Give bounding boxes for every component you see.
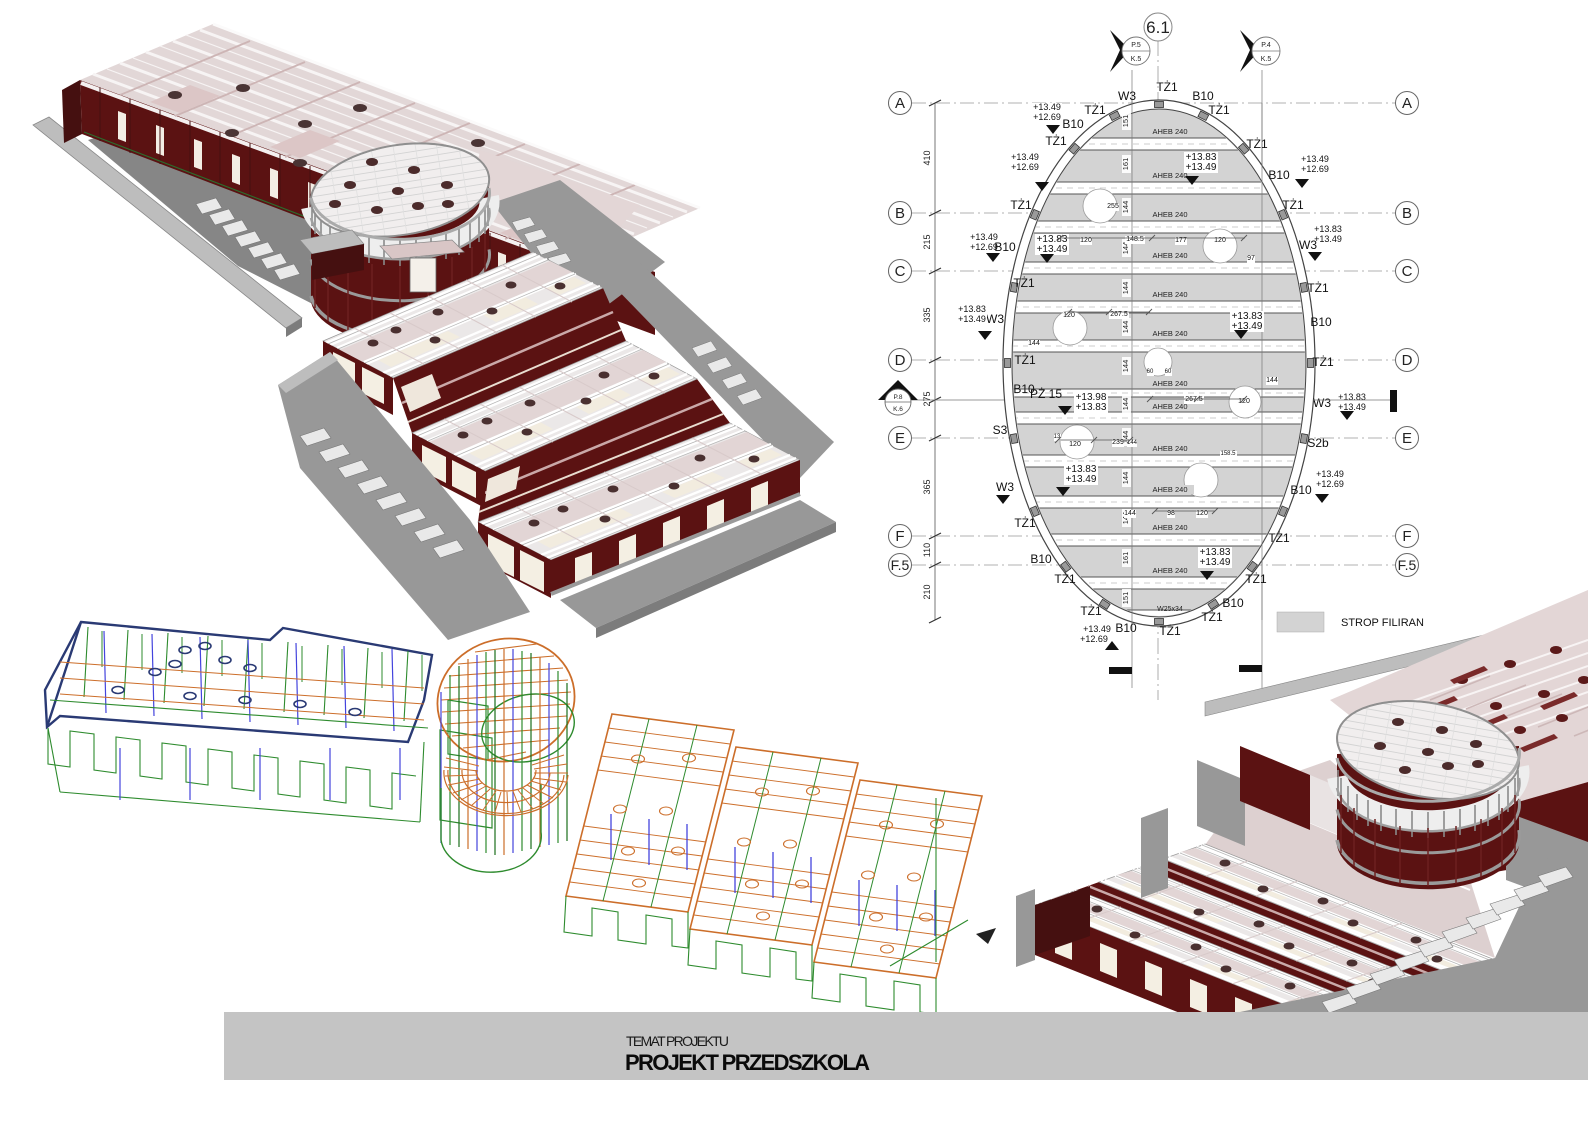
svg-text:+13.49: +13.49 [1301,154,1329,164]
svg-text:B10: B10 [1062,117,1084,131]
svg-text:S3: S3 [993,423,1008,437]
svg-text:144: 144 [1121,201,1130,214]
svg-text:97: 97 [1247,255,1255,262]
svg-text:TŻ1: TŻ1 [1159,624,1181,638]
svg-text:AHEB 240: AHEB 240 [1152,485,1187,494]
svg-text:158.5: 158.5 [1220,451,1236,457]
svg-text:B10: B10 [1115,621,1137,635]
svg-text:275: 275 [922,391,932,406]
svg-text:+12.69: +12.69 [1080,634,1108,644]
svg-text:+12.69: +12.69 [1033,112,1061,122]
svg-text:B: B [1402,205,1412,222]
svg-text:13: 13 [1054,434,1061,440]
svg-text:+13.49: +13.49 [1314,234,1342,244]
svg-text:+12.69: +12.69 [1316,479,1344,489]
svg-text:W3: W3 [996,480,1014,494]
svg-text:K.5: K.5 [1131,56,1142,63]
svg-text:151: 151 [1121,115,1130,128]
svg-text:TŻ1: TŻ1 [1084,103,1106,117]
svg-text:AHEB 240: AHEB 240 [1152,329,1187,338]
svg-text:+13.83: +13.83 [1076,402,1107,413]
svg-text:AHEB 240: AHEB 240 [1152,290,1187,299]
svg-text:AHEB 240: AHEB 240 [1152,402,1187,411]
svg-text:+13.83: +13.83 [1338,392,1366,402]
svg-text:6.1: 6.1 [1146,18,1170,37]
svg-text:S2b: S2b [1307,436,1329,450]
svg-text:P.8: P.8 [894,394,903,401]
svg-text:+13.49: +13.49 [1066,474,1097,485]
svg-text:TEMAT PROJEKTU: TEMAT PROJEKTU [626,1033,729,1049]
svg-text:STROP FILIRAN: STROP FILIRAN [1341,617,1424,629]
svg-text:365: 365 [922,479,932,494]
svg-text:+13.49: +13.49 [1316,469,1344,479]
svg-text:F: F [895,528,904,545]
svg-text:120: 120 [1069,441,1081,448]
svg-text:W25x34: W25x34 [1157,606,1183,613]
svg-text:TŻ1: TŻ1 [1014,516,1036,530]
svg-text:144: 144 [1121,321,1130,334]
svg-text:PROJEKT PRZEDSZKOLA: PROJEKT PRZEDSZKOLA [625,1050,870,1075]
svg-text:TŻ1: TŻ1 [1201,610,1223,624]
svg-text:+13.49: +13.49 [1083,624,1111,634]
svg-text:AHEB 240: AHEB 240 [1152,379,1187,388]
svg-text:F: F [1402,528,1411,545]
svg-text:TŻ1: TŻ1 [1312,355,1334,369]
svg-text:+12.69: +12.69 [1011,162,1039,172]
svg-text:B10: B10 [1222,596,1244,610]
svg-text:144: 144 [1121,282,1130,295]
svg-text:TŻ1: TŻ1 [1307,281,1329,295]
svg-text:60: 60 [1165,369,1172,375]
svg-text:AHEB 240: AHEB 240 [1152,127,1187,136]
svg-text:410: 410 [922,150,932,165]
svg-text:B10: B10 [1030,552,1052,566]
svg-text:TŻ1: TŻ1 [1080,604,1102,618]
svg-text:144: 144 [1124,510,1136,517]
svg-text:AHEB 240: AHEB 240 [1152,210,1187,219]
svg-text:PŻ 15: PŻ 15 [1030,387,1062,401]
svg-text:151: 151 [1121,592,1130,605]
svg-text:K.6: K.6 [893,406,903,413]
svg-text:+13.49: +13.49 [1033,102,1061,112]
svg-text:TŻ1: TŻ1 [1010,198,1032,212]
svg-text:161: 161 [1121,552,1130,565]
svg-text:P.4: P.4 [1261,42,1271,49]
svg-text:215: 215 [922,234,932,249]
svg-text:+13.49: +13.49 [1037,244,1068,255]
svg-text:B10: B10 [1290,483,1312,497]
svg-text:144: 144 [1121,398,1130,411]
svg-text:AHEB 240: AHEB 240 [1152,444,1187,453]
svg-text:+13.49: +13.49 [1186,162,1217,173]
svg-text:+13.49: +13.49 [958,314,986,324]
svg-text:+13.49: +13.49 [1200,557,1231,568]
svg-text:D: D [1402,352,1413,369]
svg-text:TŻ1: TŻ1 [1245,572,1267,586]
svg-text:255: 255 [1107,203,1119,210]
svg-text:TŻ1: TŻ1 [1045,134,1067,148]
svg-text:B10: B10 [1310,315,1332,329]
svg-text:E: E [895,430,905,447]
svg-text:144: 144 [1121,360,1130,373]
svg-text:120: 120 [1063,312,1075,319]
svg-text:B10: B10 [1268,168,1290,182]
svg-text:D: D [895,352,906,369]
svg-text:210: 210 [922,584,932,599]
svg-text:TŻ1: TŻ1 [1014,353,1036,367]
svg-text:+12.69: +12.69 [1301,164,1329,174]
svg-text:144: 144 [1266,377,1278,384]
svg-text:AHEB 240: AHEB 240 [1152,171,1187,180]
svg-text:B10: B10 [994,240,1016,254]
svg-text:B10: B10 [1192,89,1214,103]
svg-text:+13.83: +13.83 [1314,224,1342,234]
svg-text:C: C [895,263,906,280]
svg-text:A: A [895,95,905,112]
svg-text:K.5: K.5 [1261,56,1272,63]
svg-text:W3: W3 [1299,238,1317,252]
svg-text:AHEB 240: AHEB 240 [1152,566,1187,575]
svg-text:P.5: P.5 [1131,42,1141,49]
svg-text:E: E [1402,430,1412,447]
svg-text:TŻ1: TŻ1 [1208,103,1230,117]
svg-text:F.5: F.5 [1398,557,1417,573]
svg-text:161: 161 [1121,158,1130,171]
svg-text:TŻ1: TŻ1 [1156,80,1178,94]
svg-text:AHEB 240: AHEB 240 [1152,523,1187,532]
svg-text:TŻ1: TŻ1 [1013,276,1035,290]
svg-text:W3: W3 [986,312,1004,326]
svg-text:B: B [895,205,905,222]
svg-text:AHEB 240: AHEB 240 [1152,251,1187,260]
svg-text:W3: W3 [1118,89,1136,103]
svg-text:+13.49: +13.49 [1011,152,1039,162]
svg-text:A: A [1402,95,1412,112]
svg-text:+13.49: +13.49 [1338,402,1366,412]
svg-text:335: 335 [922,307,932,322]
svg-text:144: 144 [1028,340,1040,347]
svg-text:F.5: F.5 [891,557,910,573]
svg-text:148.5: 148.5 [1126,236,1144,243]
svg-text:TŻ1: TŻ1 [1246,137,1268,151]
svg-text:60: 60 [1147,369,1154,375]
svg-text:144: 144 [1121,472,1130,485]
svg-text:C: C [1402,263,1413,280]
svg-text:110: 110 [922,543,932,557]
svg-text:TŻ1: TŻ1 [1054,572,1076,586]
svg-text:W3: W3 [1313,396,1331,410]
svg-text:TŻ1: TŻ1 [1268,531,1290,545]
svg-text:+13.83: +13.83 [958,304,986,314]
svg-text:TŻ1: TŻ1 [1282,198,1304,212]
